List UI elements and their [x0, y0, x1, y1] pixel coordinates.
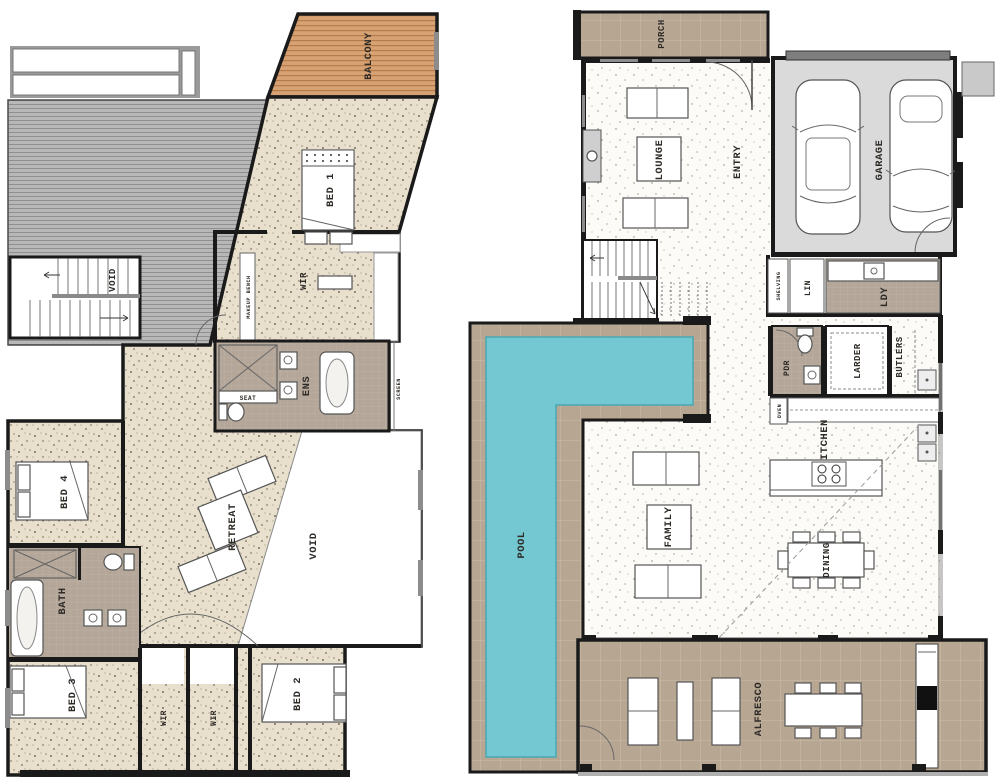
- plan-first-floor: BALCONY VOID VOID WIR: [5, 14, 439, 777]
- toilet-icon: [219, 403, 244, 421]
- kitchen-island-icon: [770, 460, 882, 496]
- pool-label: POOL: [516, 531, 528, 558]
- seat-label: SEAT: [240, 395, 256, 402]
- room-ldy: LDY: [826, 259, 940, 313]
- car-icon: [792, 80, 864, 234]
- sink-icon: [864, 263, 884, 279]
- larder-label: LARDER: [853, 343, 863, 379]
- garage-door-icon: [786, 51, 950, 60]
- family-label: FAMILY: [663, 506, 675, 547]
- bath-label: BATH: [57, 587, 69, 614]
- car-icon: [886, 80, 956, 232]
- room-bath: BATH: [8, 547, 140, 658]
- room-alfresco: ALFRESCO: [578, 640, 988, 776]
- wir2-label: WIR: [160, 710, 169, 726]
- room-void-stairs: VOID: [10, 257, 140, 338]
- balcony-label: BALCONY: [363, 32, 375, 80]
- floorplan-canvas: BALCONY VOID VOID WIR: [0, 0, 1000, 779]
- basin-icon: [804, 366, 820, 384]
- floorplan-svg: BALCONY VOID VOID WIR: [0, 0, 1000, 779]
- window: [600, 59, 740, 62]
- sofa-icon: [627, 88, 688, 118]
- plan-ground-floor: PORCH LOUNGE: [470, 10, 994, 776]
- porch-label: PORCH: [657, 19, 667, 49]
- outdoor-table-icon: [785, 683, 862, 738]
- oven-label: OVEN: [777, 404, 783, 418]
- room-pdr: PDR: [772, 326, 822, 396]
- bed4-label: BED 4: [59, 475, 71, 509]
- edge-line: [578, 772, 988, 776]
- coffee-table-icon: [677, 682, 693, 740]
- bed-icon: [16, 462, 88, 520]
- room-ldy-band: SHELVING LIN LDY: [766, 252, 955, 317]
- garage-label: GARAGE: [874, 140, 886, 181]
- void-label: VOID: [308, 532, 320, 559]
- bed1-label: BED 1: [325, 173, 337, 207]
- room-garage: GARAGE: [773, 51, 994, 255]
- butlers-label: BUTLERS: [895, 336, 905, 377]
- void-stairs-label: VOID: [108, 268, 118, 292]
- room-bed4: BED 4: [16, 462, 88, 520]
- alfresco-label: ALFRESCO: [753, 682, 765, 736]
- room-ens: SEAT ENS SCREEN: [215, 341, 402, 431]
- wardrobe-island-icon: [318, 276, 352, 289]
- ldy-label: LDY: [879, 287, 891, 308]
- room-lin: LIN: [790, 259, 824, 313]
- bathtub-icon: [320, 352, 354, 414]
- room-bed3: BED 3: [10, 666, 86, 718]
- fireplace-icon: [583, 130, 601, 182]
- sofa-icon: [635, 565, 701, 598]
- screen-label: SCREEN: [396, 378, 402, 400]
- pdr-label: PDR: [783, 360, 792, 376]
- makeup-bench-label: MAKEUP BENCH: [246, 275, 252, 318]
- bed2-label: BED 2: [292, 677, 304, 711]
- bed-icon: [262, 664, 346, 722]
- entry-label: ENTRY: [732, 145, 744, 179]
- lounge-label: LOUNGE: [654, 140, 666, 181]
- sofa-icon: [633, 452, 699, 485]
- lin-label: LIN: [804, 280, 813, 296]
- skylight-icon: [10, 46, 200, 98]
- ens-label: ENS: [301, 376, 313, 396]
- dining-label: DINING: [822, 542, 832, 577]
- retreat-label: RETREAT: [227, 503, 239, 551]
- sofa-icon: [623, 198, 688, 228]
- meter-box-icon: [962, 62, 994, 96]
- wir3-label: WIR: [210, 710, 219, 726]
- shelving-label: SHELVING: [776, 272, 782, 301]
- bed3-label: BED 3: [67, 678, 79, 712]
- wir-label: WIR: [299, 272, 309, 290]
- bbq-icon: [916, 644, 938, 768]
- toilet-icon: [797, 328, 813, 353]
- bathtub-icon: [11, 580, 43, 656]
- room-bed1: BED 1: [302, 150, 354, 244]
- room-balcony: BALCONY: [268, 14, 439, 97]
- room-larder: LARDER: [826, 326, 888, 396]
- toilet-icon: [104, 554, 134, 570]
- room-porch: PORCH: [573, 10, 768, 60]
